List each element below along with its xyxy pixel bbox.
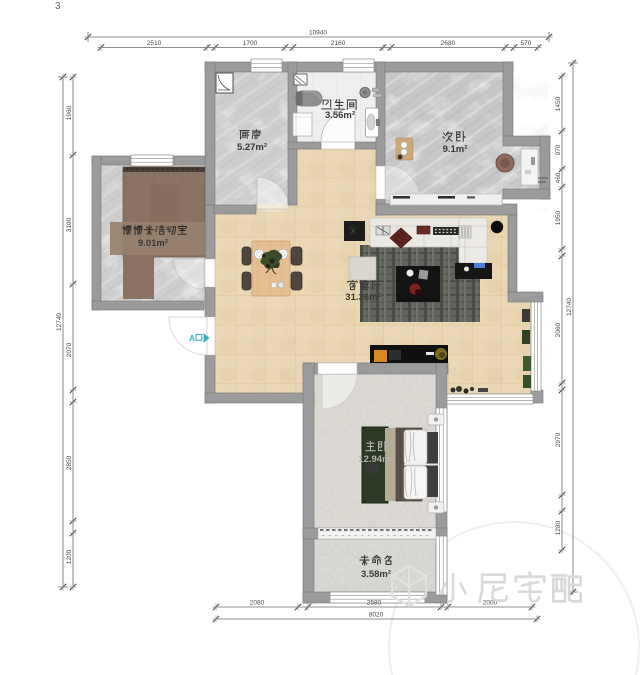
svg-text:8020: 8020 [369,612,384,619]
svg-text:5.27m²: 5.27m² [237,142,267,153]
svg-text:9.1m²: 9.1m² [443,144,468,155]
svg-text:A: A [189,333,195,343]
svg-text:2060: 2060 [555,322,562,337]
svg-text:2580: 2580 [367,600,382,607]
svg-text:2680: 2680 [441,40,456,47]
svg-text:2510: 2510 [147,40,162,47]
svg-text:3.58m²: 3.58m² [361,569,391,580]
svg-text:12740: 12740 [566,298,573,316]
svg-text:2080: 2080 [250,600,265,607]
svg-text:3100: 3100 [66,217,73,232]
svg-text:2850: 2850 [66,455,73,470]
svg-text:12.94m²: 12.94m² [358,454,393,465]
svg-text:1960: 1960 [66,105,73,120]
svg-text:460: 460 [555,172,562,183]
svg-text:3: 3 [55,1,61,12]
svg-text:2070: 2070 [66,342,73,357]
svg-text:970: 970 [555,144,562,155]
svg-text:1450: 1450 [555,96,562,111]
svg-text:1950: 1950 [555,210,562,225]
svg-text:1280: 1280 [555,520,562,535]
svg-text:1200: 1200 [66,549,73,564]
svg-text:1700: 1700 [243,40,258,47]
svg-text:3.56m²: 3.56m² [325,110,355,121]
svg-text:570: 570 [521,40,532,47]
svg-text:2970: 2970 [555,432,562,447]
svg-text:31.36m²: 31.36m² [345,292,380,303]
svg-text:10940: 10940 [309,30,327,37]
svg-text:9.01m²: 9.01m² [138,238,168,249]
svg-text:2160: 2160 [331,40,346,47]
svg-text:12740: 12740 [56,313,63,331]
